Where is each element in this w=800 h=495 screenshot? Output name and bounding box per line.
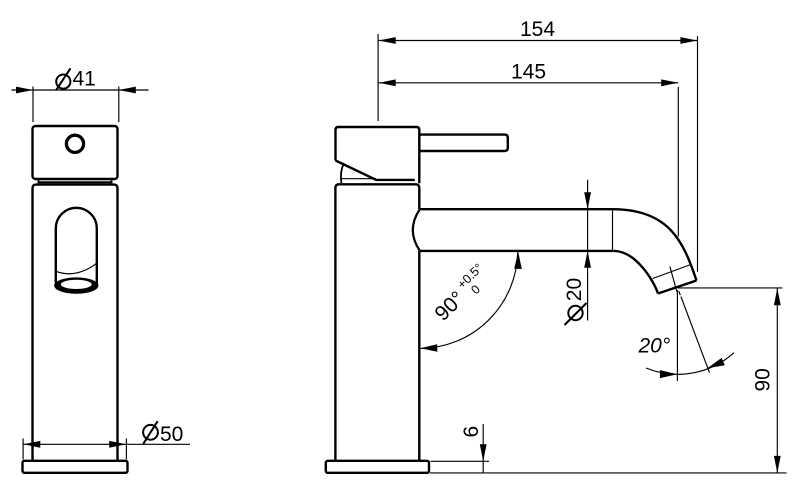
svg-text:50: 50 [160,423,183,446]
svg-text:20: 20 [563,278,586,301]
svg-text:41: 41 [73,68,96,91]
svg-text:154: 154 [520,18,555,41]
svg-text:90: 90 [751,368,774,391]
svg-text:145: 145 [511,61,546,84]
svg-text:20°: 20° [638,335,671,358]
svg-text:6: 6 [460,426,483,438]
